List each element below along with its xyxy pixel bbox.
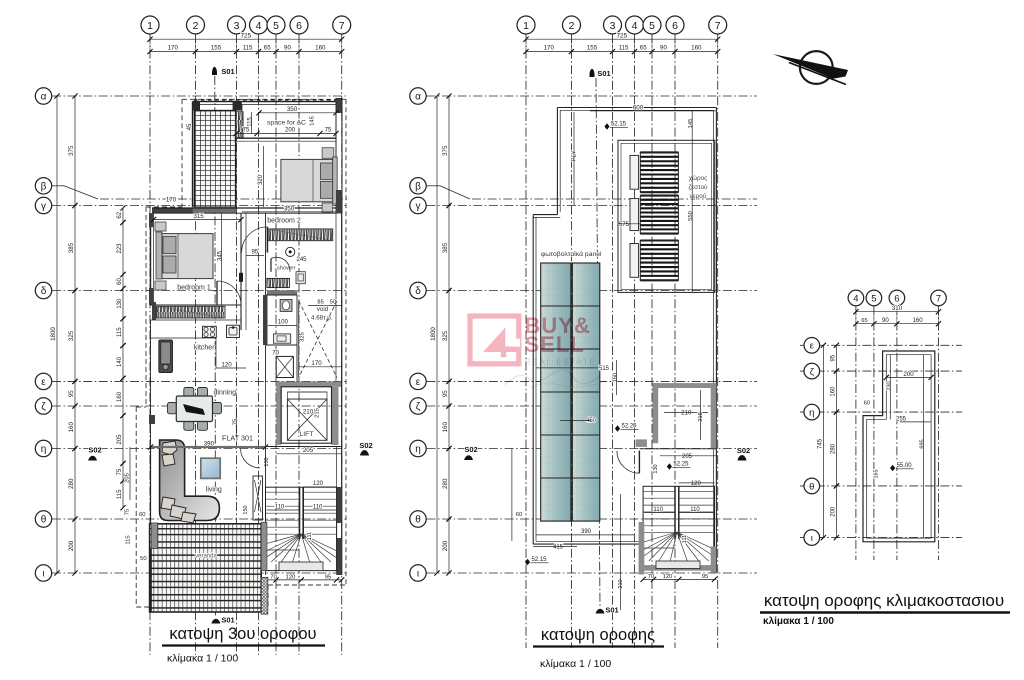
svg-text:62: 62 (117, 211, 123, 218)
svg-text:160: 160 (315, 44, 326, 51)
svg-text:6: 6 (672, 20, 678, 32)
svg-text:120: 120 (313, 481, 324, 487)
svg-text:600: 600 (633, 104, 644, 111)
svg-text:6: 6 (894, 293, 899, 304)
svg-text:2: 2 (193, 20, 199, 32)
svg-text:200: 200 (442, 540, 449, 551)
svg-text:170: 170 (311, 360, 322, 367)
svg-text:111: 111 (682, 535, 688, 543)
svg-text:111: 111 (307, 532, 313, 540)
svg-text:6: 6 (296, 20, 302, 32)
svg-text:210: 210 (303, 409, 314, 416)
svg-text:100: 100 (278, 320, 289, 326)
svg-text:ε: ε (41, 377, 46, 388)
svg-text:ζεστού: ζεστού (688, 183, 708, 191)
svg-text:ε: ε (416, 377, 421, 388)
svg-text:160: 160 (691, 44, 702, 51)
svg-text:170: 170 (168, 44, 179, 51)
svg-text:350: 350 (287, 106, 298, 113)
svg-text:space for AC: space for AC (267, 120, 306, 127)
svg-text:90: 90 (882, 318, 889, 324)
svg-text:415: 415 (553, 545, 564, 551)
svg-text:θ: θ (41, 515, 47, 526)
svg-text:52.25: 52.25 (673, 461, 689, 467)
svg-text:φωτοβολταϊκά panel: φωτοβολταϊκά panel (541, 250, 602, 258)
svg-text:65: 65 (861, 318, 867, 324)
svg-text:1: 1 (523, 20, 529, 32)
svg-text:320: 320 (258, 174, 264, 185)
svg-text:310: 310 (892, 305, 903, 312)
svg-text:110: 110 (690, 507, 700, 513)
svg-text:110: 110 (653, 507, 663, 513)
svg-text:140: 140 (117, 356, 123, 367)
svg-text:η: η (41, 444, 47, 455)
svg-text:115: 115 (117, 489, 123, 499)
svg-text:75: 75 (232, 419, 238, 425)
svg-text:κλίμακα 1 / 100: κλίμακα 1 / 100 (540, 658, 611, 670)
svg-text:215: 215 (698, 412, 704, 421)
svg-text:160: 160 (613, 373, 619, 382)
svg-text:280: 280 (68, 478, 75, 489)
svg-text:245: 245 (296, 257, 307, 263)
svg-text:90: 90 (660, 44, 667, 51)
svg-text:5: 5 (273, 20, 279, 32)
svg-text:210: 210 (618, 579, 624, 588)
svg-text:65: 65 (264, 44, 271, 51)
svg-text:160: 160 (913, 318, 924, 324)
svg-text:70: 70 (272, 350, 279, 356)
svg-text:450: 450 (586, 418, 597, 424)
svg-text:52.15: 52.15 (611, 121, 627, 127)
svg-text:230: 230 (886, 381, 892, 390)
svg-text:315: 315 (193, 213, 204, 220)
svg-text:200: 200 (903, 371, 914, 378)
svg-text:dinning: dinning (214, 390, 237, 397)
svg-text:95: 95 (251, 250, 258, 256)
svg-text:χώρος: χώρος (689, 174, 707, 182)
svg-text:210: 210 (681, 410, 692, 417)
svg-text:η: η (809, 408, 814, 419)
svg-text:115: 115 (117, 327, 123, 337)
svg-text:κατοψη οροφης κλιμακοστασιου: κατοψη οροφης κλιμακοστασιου (764, 591, 1004, 610)
svg-text:60: 60 (864, 401, 870, 407)
svg-text:120: 120 (663, 574, 673, 580)
svg-text:160: 160 (442, 422, 449, 433)
svg-text:κλίμακα 1 / 100: κλίμακα 1 / 100 (167, 653, 238, 665)
svg-text:200: 200 (831, 506, 837, 517)
svg-text:4: 4 (256, 20, 262, 32)
svg-text:FLAT 301: FLAT 301 (222, 434, 253, 443)
svg-text:S01: S01 (221, 616, 234, 625)
svg-text:85: 85 (317, 300, 323, 306)
svg-text:4: 4 (853, 293, 858, 304)
svg-text:115: 115 (243, 44, 253, 51)
svg-text:165: 165 (874, 470, 880, 479)
svg-text:200: 200 (285, 128, 296, 134)
svg-text:110: 110 (275, 505, 285, 511)
svg-text:α: α (415, 92, 421, 103)
svg-text:205: 205 (682, 454, 693, 460)
svg-text:75: 75 (125, 509, 131, 515)
svg-text:bedroom 2: bedroom 2 (267, 218, 301, 225)
svg-text:κατοψη οροφης: κατοψη οροφης (541, 626, 655, 644)
svg-text:S01: S01 (221, 67, 234, 76)
svg-text:375: 375 (442, 145, 449, 156)
svg-text:95: 95 (442, 390, 449, 397)
svg-text:170: 170 (166, 196, 177, 203)
svg-text:120: 120 (221, 361, 232, 368)
svg-text:ζ: ζ (41, 402, 46, 413)
svg-text:1800: 1800 (430, 327, 437, 341)
svg-text:1: 1 (147, 20, 153, 32)
svg-text:725: 725 (241, 32, 252, 39)
svg-text:ι: ι (42, 569, 44, 580)
svg-text:3: 3 (610, 20, 616, 32)
svg-text:280: 280 (442, 478, 449, 489)
svg-text:390: 390 (204, 440, 215, 447)
svg-text:205: 205 (117, 434, 123, 445)
svg-text:325: 325 (68, 330, 75, 341)
svg-text:S02: S02 (464, 445, 477, 454)
svg-text:75: 75 (243, 128, 250, 134)
svg-text:95: 95 (831, 354, 837, 361)
svg-text:130: 130 (653, 464, 659, 473)
svg-text:κλίμακα 1 / 100: κλίμακα 1 / 100 (763, 616, 834, 627)
svg-text:515: 515 (599, 366, 610, 372)
svg-text:1800: 1800 (50, 327, 57, 341)
svg-text:S02: S02 (737, 446, 750, 455)
svg-text:55.00: 55.00 (897, 463, 913, 469)
svg-text:bedroom 1: bedroom 1 (177, 285, 211, 292)
svg-text:115: 115 (619, 44, 629, 51)
svg-text:145: 145 (688, 119, 694, 129)
svg-text:60: 60 (117, 278, 123, 285)
svg-text:60: 60 (516, 512, 522, 518)
svg-text:130: 130 (117, 298, 123, 309)
svg-text:255: 255 (896, 416, 907, 422)
svg-text:veranda: veranda (195, 554, 217, 560)
svg-text:325: 325 (299, 332, 305, 342)
svg-text:205: 205 (303, 447, 314, 454)
svg-text:115: 115 (248, 117, 254, 127)
svg-text:75: 75 (117, 468, 123, 475)
svg-text:γ: γ (416, 201, 421, 212)
svg-text:150: 150 (264, 457, 270, 466)
svg-text:95: 95 (325, 574, 331, 580)
svg-text:kitchen: kitchen (194, 345, 216, 352)
svg-text:void: void (317, 306, 329, 313)
svg-text:SELL: SELL (525, 332, 585, 357)
svg-text:ζ: ζ (416, 402, 421, 413)
svg-text:150: 150 (243, 505, 249, 514)
svg-text:S01: S01 (605, 606, 618, 615)
svg-text:345: 345 (218, 250, 224, 261)
svg-text:3: 3 (234, 20, 240, 32)
svg-text:45: 45 (187, 123, 193, 130)
svg-text:θ: θ (809, 481, 814, 492)
svg-text:215: 215 (315, 408, 321, 418)
svg-text:β: β (415, 181, 421, 192)
svg-text:115: 115 (125, 535, 131, 544)
svg-text:575: 575 (619, 222, 630, 228)
svg-text:5: 5 (649, 20, 655, 32)
svg-text:145: 145 (310, 116, 316, 126)
svg-text:325: 325 (442, 330, 449, 341)
svg-text:κατοψη 3ου οροφου: κατοψη 3ου οροφου (169, 625, 316, 643)
svg-text:155: 155 (587, 44, 598, 51)
svg-text:7: 7 (339, 20, 345, 32)
svg-text:δ: δ (415, 286, 421, 297)
svg-text:160: 160 (831, 386, 837, 397)
svg-text:95: 95 (68, 390, 75, 397)
svg-text:280: 280 (831, 443, 837, 454)
svg-text:52.15: 52.15 (532, 557, 548, 563)
svg-text:β: β (41, 181, 47, 192)
svg-text:90: 90 (284, 44, 291, 51)
svg-text:160: 160 (117, 391, 123, 402)
svg-text:223: 223 (117, 243, 123, 254)
svg-text:ι: ι (811, 533, 813, 544)
svg-text:110: 110 (313, 505, 323, 511)
svg-text:7: 7 (936, 293, 941, 304)
svg-text:REAL ESTATE: REAL ESTATE (525, 358, 596, 367)
svg-text:S02: S02 (88, 446, 101, 455)
svg-text:385: 385 (442, 242, 449, 253)
svg-text:LIFT: LIFT (300, 431, 314, 438)
svg-text:α: α (41, 92, 47, 103)
svg-text:θ: θ (415, 515, 421, 526)
svg-text:695: 695 (919, 439, 925, 448)
svg-text:50: 50 (140, 556, 146, 562)
svg-text:60: 60 (139, 512, 145, 518)
svg-text:52.20: 52.20 (622, 423, 638, 429)
svg-text:350: 350 (284, 205, 295, 212)
svg-text:γ: γ (41, 201, 46, 212)
svg-text:95: 95 (702, 574, 708, 580)
svg-text:PLY: PLY (572, 151, 578, 162)
svg-text:65: 65 (640, 44, 647, 51)
svg-text:δ: δ (41, 286, 47, 297)
svg-text:75: 75 (325, 128, 332, 134)
svg-text:ε: ε (810, 341, 815, 352)
svg-text:2: 2 (569, 20, 575, 32)
svg-text:50: 50 (330, 300, 336, 306)
svg-text:550: 550 (688, 211, 694, 221)
svg-text:ι: ι (417, 569, 419, 580)
svg-text:385: 385 (68, 242, 75, 253)
svg-text:S02: S02 (359, 441, 372, 450)
svg-text:S01: S01 (597, 69, 610, 78)
svg-text:4: 4 (632, 20, 638, 32)
svg-text:390: 390 (581, 529, 592, 535)
svg-text:155: 155 (211, 44, 222, 51)
svg-text:120: 120 (286, 574, 296, 580)
svg-text:745: 745 (818, 438, 824, 449)
svg-text:5: 5 (871, 293, 876, 304)
svg-text:living: living (206, 487, 222, 494)
svg-text:170: 170 (544, 44, 555, 51)
svg-text:725: 725 (617, 32, 628, 39)
svg-text:shower: shower (277, 266, 296, 272)
svg-text:160: 160 (68, 422, 75, 433)
svg-text:375: 375 (68, 145, 75, 156)
svg-text:η: η (415, 444, 421, 455)
svg-text:200: 200 (68, 540, 75, 551)
svg-text:7: 7 (715, 20, 721, 32)
